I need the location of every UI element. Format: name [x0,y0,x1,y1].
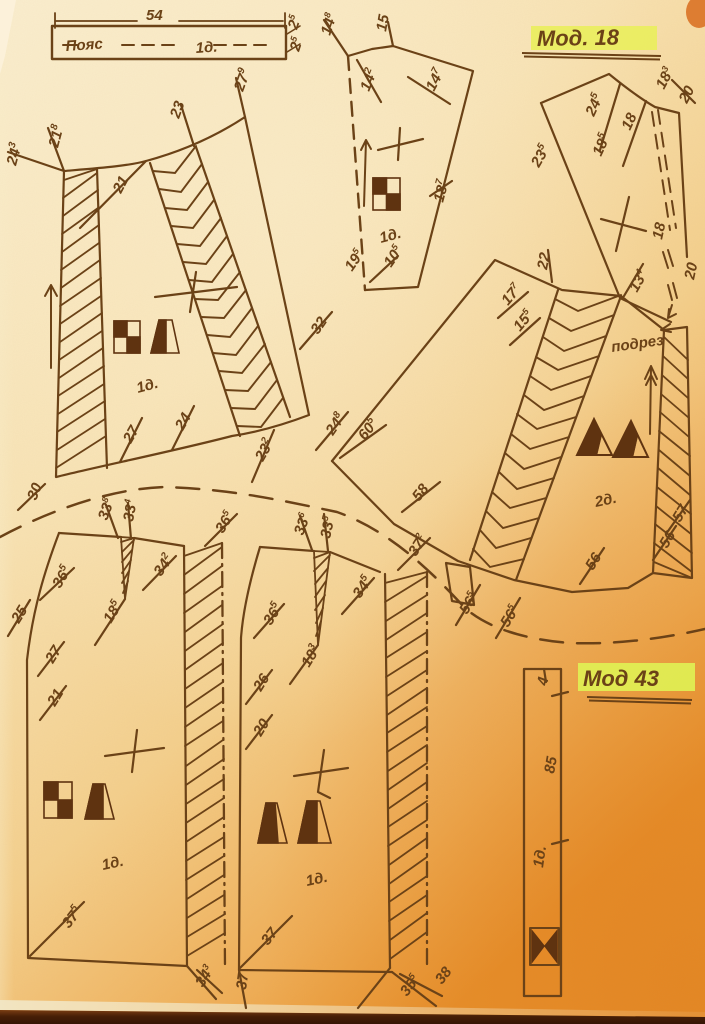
svg-text:37: 37 [233,971,252,991]
svg-text:1д.: 1д. [530,845,550,869]
svg-text:22: 22 [534,251,554,272]
svg-text:1д.: 1д. [195,39,218,57]
svg-text:54: 54 [146,7,163,24]
svg-text:Мод. 18: Мод. 18 [537,25,620,51]
svg-text:Мод 43: Мод 43 [583,666,659,691]
svg-text:Пояс: Пояс [65,35,104,55]
